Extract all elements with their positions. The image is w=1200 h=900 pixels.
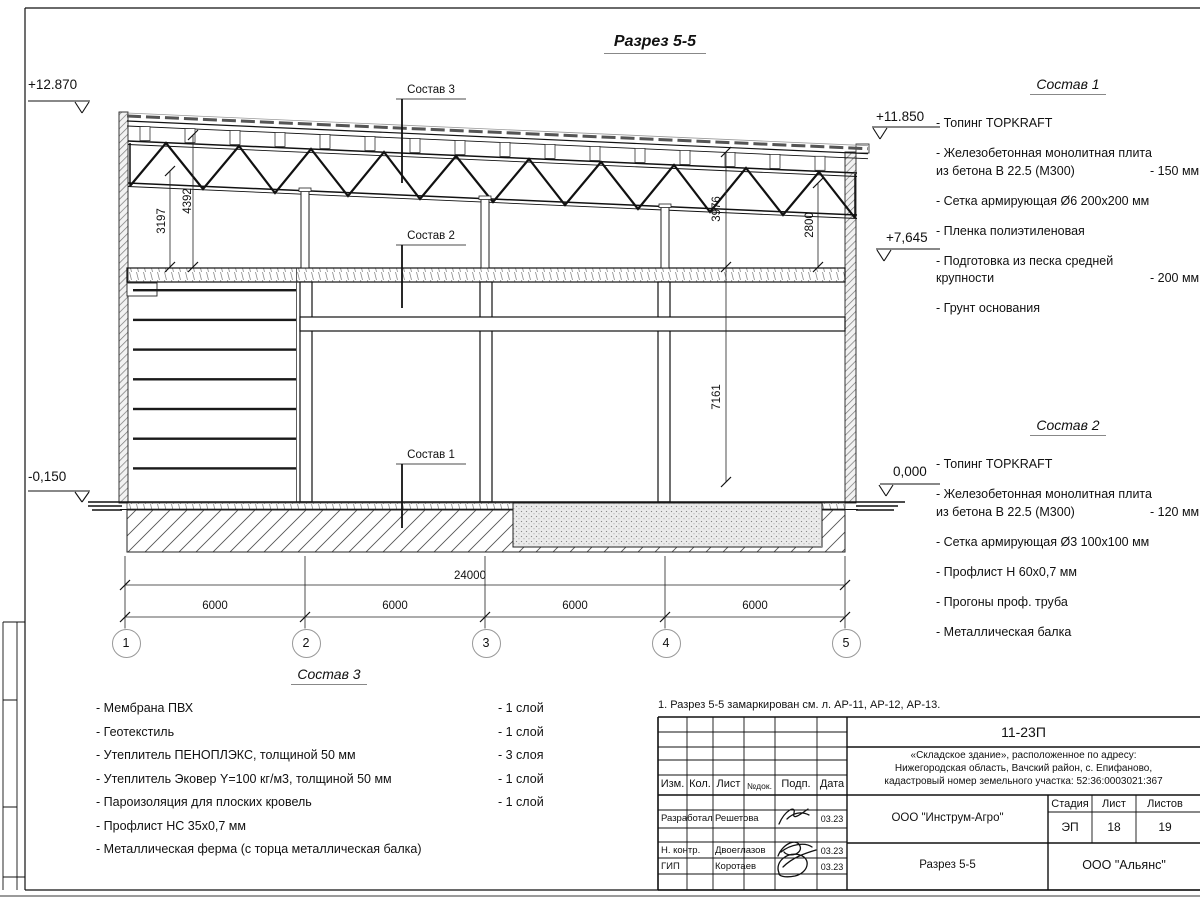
- stamp-sheet-value: 18: [1092, 820, 1136, 834]
- callout-leaders: [396, 99, 466, 528]
- elevation-zero-right: 0,000: [893, 464, 927, 479]
- dim-bay-4: 6000: [725, 600, 785, 612]
- drawing-title: Разрез 5-5: [520, 33, 790, 54]
- stamp-project-line3: кадастровый номер земельного участка: 52…: [850, 776, 1197, 787]
- list-item: - Сетка армирующая Ø6 200х200 мм: [936, 193, 1200, 211]
- list-item: - Геотекстиль- 1 слой: [96, 725, 562, 739]
- elevation-top-left: +12.870: [28, 77, 77, 92]
- drawing-sheet: { "title": "Разрез 5-5", "note": "1. Раз…: [0, 0, 1200, 900]
- dim-total: 24000: [430, 570, 510, 582]
- stamp-doc-number: 11-23П: [847, 724, 1200, 740]
- axis-bubble-4: 4: [652, 629, 681, 658]
- dim-7161: 7161: [711, 362, 723, 432]
- rack-section: [133, 289, 296, 470]
- axis-bubble-1: 1: [112, 629, 141, 658]
- list-item: - Подготовка из песка среднейкрупности- …: [936, 253, 1200, 288]
- stamp-sheets-label: Листов: [1136, 798, 1194, 810]
- dim-bay-1: 6000: [185, 600, 245, 612]
- list-item: - Утеплитель ПЕНОПЛЭКС, толщиной 50 мм- …: [96, 748, 562, 762]
- stamp-header-data: Дата: [817, 778, 847, 790]
- stamp-stage-value: ЭП: [1048, 820, 1092, 834]
- composition-2-list: Состав 2 - Топинг TOPKRAFT - Железобетон…: [936, 417, 1200, 654]
- stamp-role-developer: Разработал: [661, 813, 713, 824]
- dim-3976: 3976: [711, 174, 723, 244]
- list-item: - Металлическая балка: [936, 624, 1200, 642]
- ground-floor: [88, 502, 905, 552]
- dim-2800: 2800: [804, 190, 816, 260]
- list-item: - Пароизоляция для плоских кровель- 1 сл…: [96, 795, 562, 809]
- columns: [300, 282, 670, 502]
- axis-bubble-5: 5: [832, 629, 861, 658]
- list-item: - Профлист НС 35х0,7 мм: [96, 819, 562, 833]
- stamp-header-kol: Кол.: [687, 778, 713, 790]
- stamp-date-gip: 03.23: [817, 862, 847, 872]
- stamp-sheet-label: Лист: [1092, 798, 1136, 810]
- stamp-role-ncontrol: Н. контр.: [661, 845, 700, 856]
- composition-3-list: Состав 3 - Мембрана ПВХ- 1 слой - Геотек…: [96, 666, 562, 866]
- stamp-project-line1: «Складское здание», расположенное по адр…: [850, 750, 1197, 761]
- list-item: - Железобетонная монолитная плитаиз бето…: [936, 486, 1200, 521]
- list-item: - Грунт основания: [936, 300, 1200, 318]
- stamp-project-line2: Нижегородская область, Вачский район, с.…: [850, 763, 1197, 774]
- list-item: - Железобетонная монолитная плитаиз бето…: [936, 145, 1200, 180]
- stamp-header-ndok: №док.: [744, 781, 775, 791]
- dim-3197: 3197: [156, 186, 168, 256]
- stamp-drawing-name: Разрез 5-5: [847, 859, 1048, 871]
- composition-2-heading: Состав 2: [936, 417, 1200, 436]
- elevation-mid-right: +7,645: [886, 230, 928, 245]
- list-item: - Топинг TOPKRAFT: [936, 456, 1200, 474]
- signature-reshetova: [779, 809, 809, 824]
- signature-korotaev: [778, 850, 816, 877]
- dim-bay-3: 6000: [545, 600, 605, 612]
- floor-beam: [300, 317, 845, 331]
- callout-sostav-1: Состав 1: [396, 449, 466, 461]
- callout-sostav-3: Состав 3: [396, 84, 466, 96]
- axis-bubble-2: 2: [292, 629, 321, 658]
- list-item: - Металлическая ферма (с торца металличе…: [96, 842, 562, 856]
- elevation-bottom-left: -0,150: [28, 469, 66, 484]
- stamp-header-list: Лист: [713, 778, 744, 790]
- composition-3-heading: Состав 3: [96, 666, 562, 685]
- walls: [119, 112, 869, 503]
- dim-4392: 4392: [182, 166, 194, 236]
- stamp-date-developer: 03.23: [817, 814, 847, 824]
- axis-bubble-3: 3: [472, 629, 501, 658]
- stamp-role-gip: ГИП: [661, 861, 680, 872]
- stamp-stage-label: Стадия: [1048, 798, 1092, 810]
- list-item: - Мембрана ПВХ- 1 слой: [96, 701, 562, 715]
- callout-sostav-2: Состав 2: [396, 230, 466, 242]
- stamp-header-podp: Подп.: [775, 778, 817, 790]
- composition-1-list: Состав 1 - Топинг TOPKRAFT - Железобетон…: [936, 76, 1200, 330]
- list-item: - Пленка полиэтиленовая: [936, 223, 1200, 241]
- stamp-date-ncontrol: 03.23: [817, 846, 847, 856]
- elevation-top-right: +11.850: [876, 109, 924, 124]
- stamp-header-izm: Изм.: [658, 778, 687, 790]
- signatures: [778, 809, 816, 877]
- sheet-note: 1. Разрез 5-5 замаркирован см. л. АР-11,…: [658, 699, 940, 711]
- list-item: - Прогоны проф. труба: [936, 594, 1200, 612]
- stamp-name-gip: Коротаев: [715, 861, 756, 872]
- dim-bay-2: 6000: [365, 600, 425, 612]
- composition-1-heading: Состав 1: [936, 76, 1200, 95]
- stamp-org-design: ООО "Инструм-Агро": [847, 812, 1048, 824]
- second-floor: [127, 188, 845, 296]
- stamp-org-customer: ООО "Альянс": [1048, 858, 1200, 872]
- list-item: - Топинг TOPKRAFT: [936, 115, 1200, 133]
- list-item: - Утеплитель Эковер Y=100 кг/м3, толщино…: [96, 772, 562, 786]
- roof-truss: [128, 141, 857, 219]
- stamp-sheets-value: 19: [1136, 820, 1194, 834]
- list-item: - Профлист Н 60х0,7 мм: [936, 564, 1200, 582]
- list-item: - Сетка армирующая Ø3 100х100 мм: [936, 534, 1200, 552]
- stamp-name-ncontrol: Двоеглазов: [715, 845, 766, 856]
- stamp-name-developer: Решетова: [715, 813, 759, 824]
